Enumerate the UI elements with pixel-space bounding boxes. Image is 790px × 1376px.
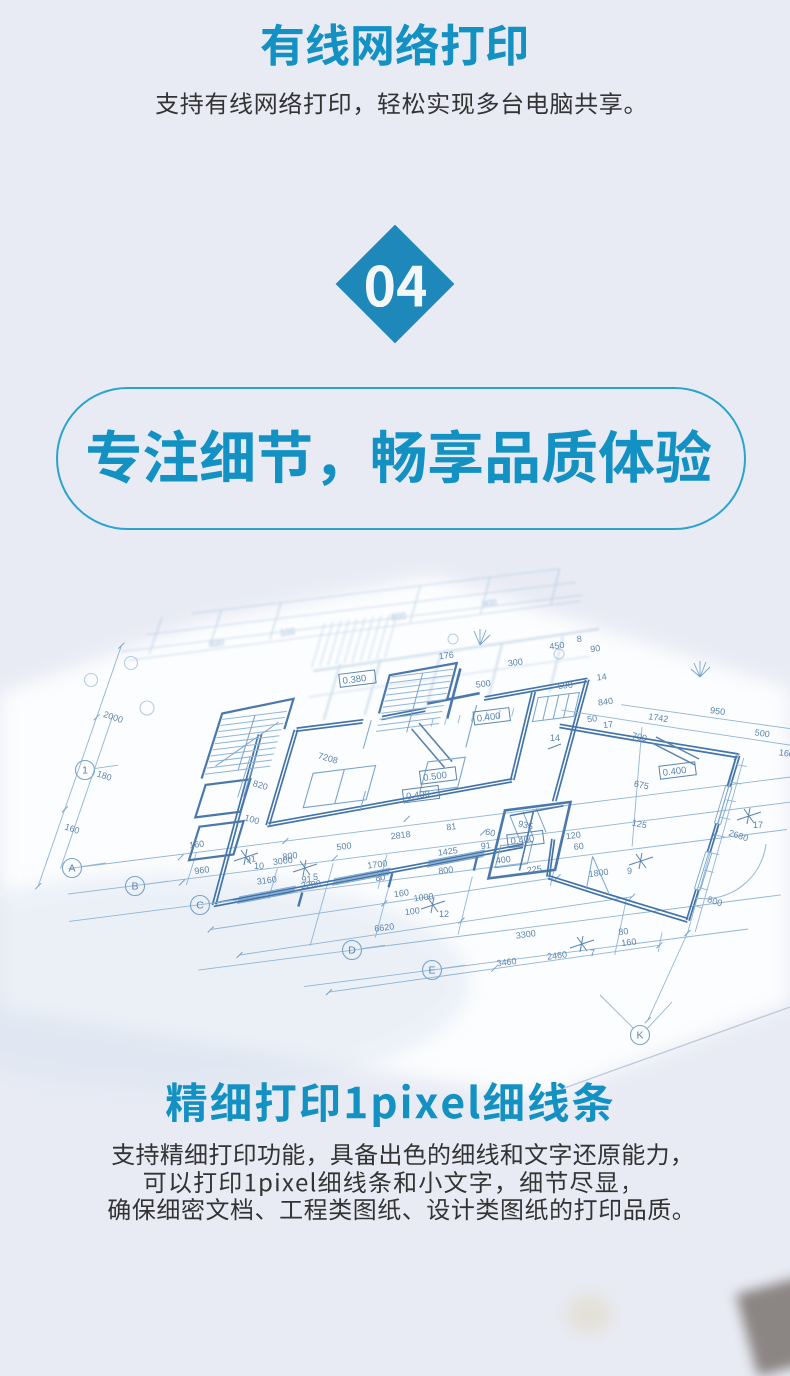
svg-text:800: 800 — [438, 864, 454, 876]
svg-text:91: 91 — [480, 840, 491, 851]
svg-text:60: 60 — [573, 841, 584, 852]
svg-text:820: 820 — [209, 637, 225, 649]
svg-text:17: 17 — [753, 820, 763, 830]
svg-text:90: 90 — [590, 643, 601, 654]
svg-text:600: 600 — [390, 611, 406, 623]
svg-text:160: 160 — [189, 839, 205, 851]
svg-text:81: 81 — [446, 821, 457, 832]
svg-text:12: 12 — [439, 909, 449, 919]
svg-text:960: 960 — [194, 864, 210, 876]
svg-text:300: 300 — [507, 657, 523, 669]
svg-text:500: 500 — [475, 678, 491, 690]
svg-text:7: 7 — [590, 948, 595, 958]
svg-text:C: C — [196, 900, 204, 912]
svg-text:800: 800 — [481, 598, 497, 610]
svg-text:5: 5 — [313, 872, 318, 882]
svg-text:1: 1 — [82, 765, 88, 777]
svg-text:K: K — [636, 1030, 643, 1042]
svg-text:160: 160 — [621, 936, 637, 948]
svg-text:A: A — [68, 863, 75, 875]
svg-text:80: 80 — [618, 926, 629, 937]
svg-text:B: B — [131, 881, 138, 893]
svg-text:9: 9 — [627, 866, 632, 876]
svg-text:160: 160 — [393, 887, 409, 899]
svg-text:100: 100 — [279, 626, 295, 638]
svg-text:120: 120 — [565, 830, 581, 842]
svg-text:14: 14 — [550, 733, 560, 743]
svg-text:400: 400 — [495, 854, 511, 866]
svg-text:690: 690 — [557, 680, 573, 692]
svg-text:176: 176 — [438, 650, 454, 662]
svg-text:10: 10 — [254, 861, 264, 871]
svg-text:14: 14 — [596, 671, 607, 682]
svg-text:100: 100 — [404, 905, 420, 917]
svg-text:80: 80 — [375, 872, 386, 883]
svg-text:950: 950 — [710, 705, 726, 717]
svg-text:17: 17 — [602, 719, 613, 730]
svg-text:840: 840 — [597, 696, 613, 708]
svg-text:500: 500 — [336, 840, 352, 852]
svg-text:225: 225 — [526, 864, 542, 876]
svg-text:D: D — [348, 945, 356, 957]
svg-text:E: E — [428, 965, 435, 977]
